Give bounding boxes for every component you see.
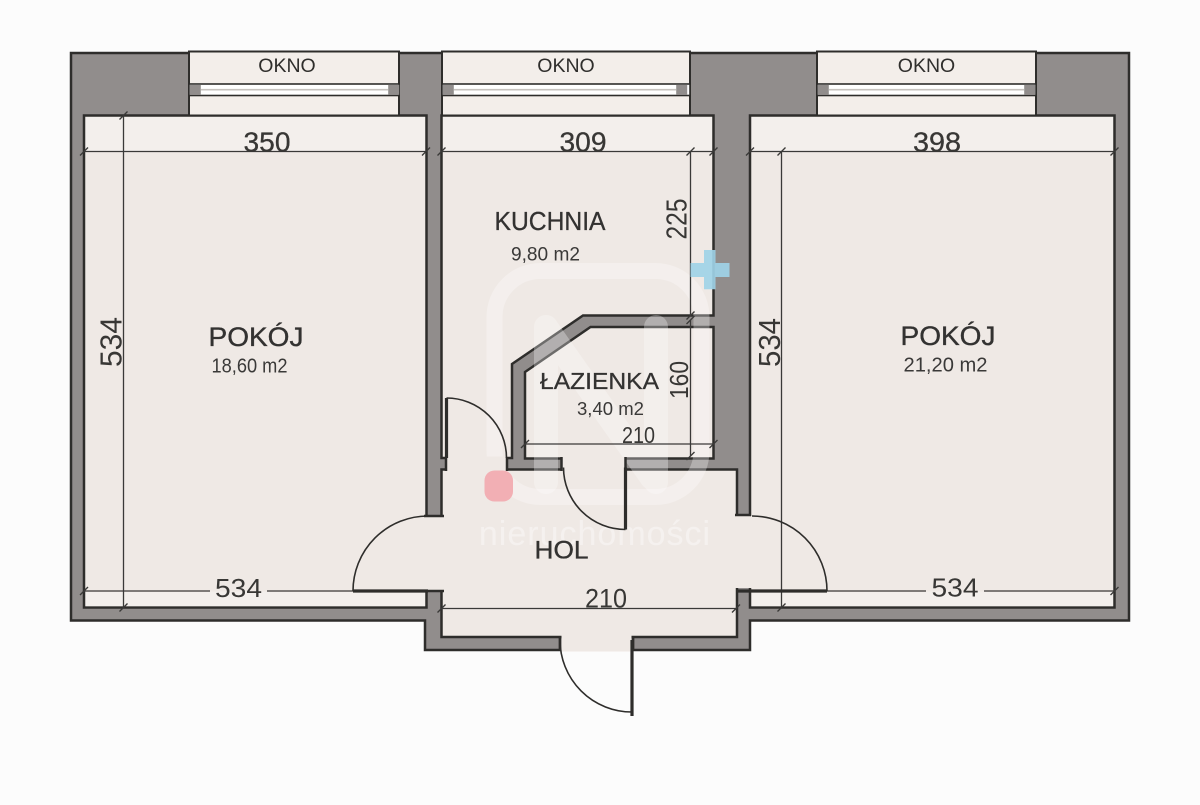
svg-text:OKNO: OKNO [258,55,315,77]
svg-text:534: 534 [752,318,787,367]
svg-text:POKÓJ: POKÓJ [901,320,996,351]
svg-text:nieruchomości: nieruchomości [479,515,711,553]
svg-text:OKNO: OKNO [898,55,955,77]
svg-text:534: 534 [932,573,979,603]
svg-text:210: 210 [622,422,655,448]
svg-text:534: 534 [94,317,129,367]
svg-text:160: 160 [664,361,694,399]
svg-text:350: 350 [244,126,291,157]
svg-text:HOL: HOL [535,537,589,565]
svg-text:OKNO: OKNO [537,55,594,77]
svg-text:398: 398 [913,126,961,157]
svg-text:309: 309 [560,126,607,157]
svg-text:534: 534 [215,573,262,603]
svg-text:210: 210 [585,584,627,614]
svg-text:POKÓJ: POKÓJ [209,321,304,352]
svg-text:9,80 m2: 9,80 m2 [511,244,580,266]
svg-text:3,40 m2: 3,40 m2 [577,398,644,419]
svg-text:18,60 m2: 18,60 m2 [212,356,288,378]
svg-text:KUCHNIA: KUCHNIA [495,206,607,236]
svg-text:ŁAZIENKA: ŁAZIENKA [540,368,659,394]
svg-text:225: 225 [662,199,694,240]
svg-text:21,20 m2: 21,20 m2 [904,355,988,377]
